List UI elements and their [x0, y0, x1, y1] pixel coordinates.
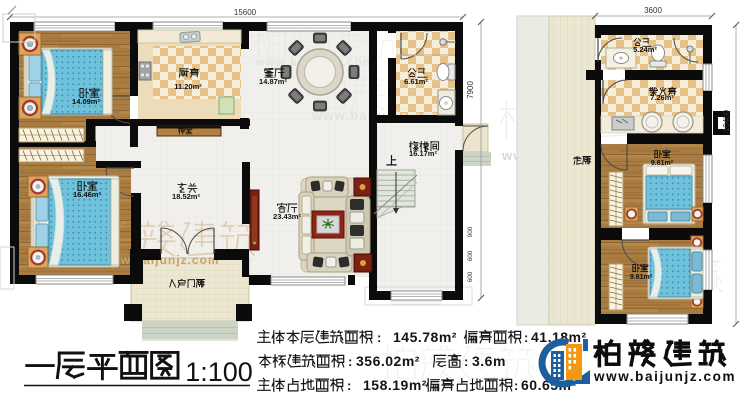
svg-text::: :: [514, 378, 518, 393]
svg-text:10400: 10400: [722, 109, 731, 132]
svg-text:9.61m²: 9.61m²: [651, 160, 674, 167]
svg-text:356.02m²: 356.02m²: [356, 353, 420, 369]
svg-text:5.24m²: 5.24m²: [633, 45, 657, 54]
svg-text:900: 900: [467, 226, 474, 237]
svg-text:600: 600: [467, 250, 474, 261]
svg-text::: :: [377, 330, 381, 345]
svg-text:7900: 7900: [466, 81, 475, 99]
svg-text:3.6m: 3.6m: [472, 353, 506, 369]
svg-text:15600: 15600: [234, 8, 257, 17]
svg-text:14.87m²: 14.87m²: [259, 77, 287, 86]
svg-text:11.20m²: 11.20m²: [174, 82, 202, 91]
svg-text:14.09m²: 14.09m²: [72, 97, 100, 106]
svg-text:3600: 3600: [644, 6, 662, 15]
svg-text::: :: [348, 354, 352, 369]
svg-text:16.17m²: 16.17m²: [409, 149, 437, 158]
svg-text::: :: [464, 354, 468, 369]
svg-text:158.19m²: 158.19m²: [363, 377, 427, 393]
svg-text:7.26m²: 7.26m²: [650, 93, 674, 102]
svg-text:9.61m²: 9.61m²: [630, 274, 653, 281]
svg-text:145.78m²: 145.78m²: [393, 329, 457, 345]
svg-text::: :: [524, 330, 528, 345]
svg-text:www.baijunjz.com: www.baijunjz.com: [593, 369, 736, 384]
svg-text:6.61m²: 6.61m²: [404, 77, 428, 86]
svg-text:600: 600: [467, 271, 474, 282]
svg-text::: :: [347, 378, 351, 393]
svg-text:18.52m²: 18.52m²: [172, 192, 200, 201]
svg-text:23.43m²: 23.43m²: [273, 212, 301, 221]
svg-text:1:100: 1:100: [185, 357, 253, 387]
svg-text:16.46m²: 16.46m²: [73, 190, 101, 199]
